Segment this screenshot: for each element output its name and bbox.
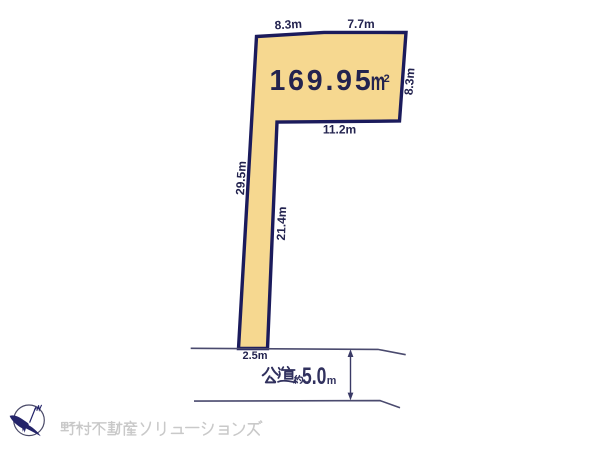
svg-text:11.2m: 11.2m bbox=[323, 122, 356, 136]
svg-text:m: m bbox=[327, 375, 337, 387]
svg-text:8.3m: 8.3m bbox=[274, 17, 302, 33]
svg-text:21.4m: 21.4m bbox=[274, 206, 289, 241]
svg-text:8.3m: 8.3m bbox=[402, 67, 418, 95]
svg-text:2.5m: 2.5m bbox=[242, 350, 267, 362]
svg-text:7.7m: 7.7m bbox=[347, 17, 374, 31]
svg-text:2: 2 bbox=[384, 73, 390, 85]
svg-text:169.95: 169.95 bbox=[270, 65, 374, 97]
svg-text:5.0: 5.0 bbox=[302, 364, 326, 390]
svg-text:29.5m: 29.5m bbox=[233, 161, 249, 196]
